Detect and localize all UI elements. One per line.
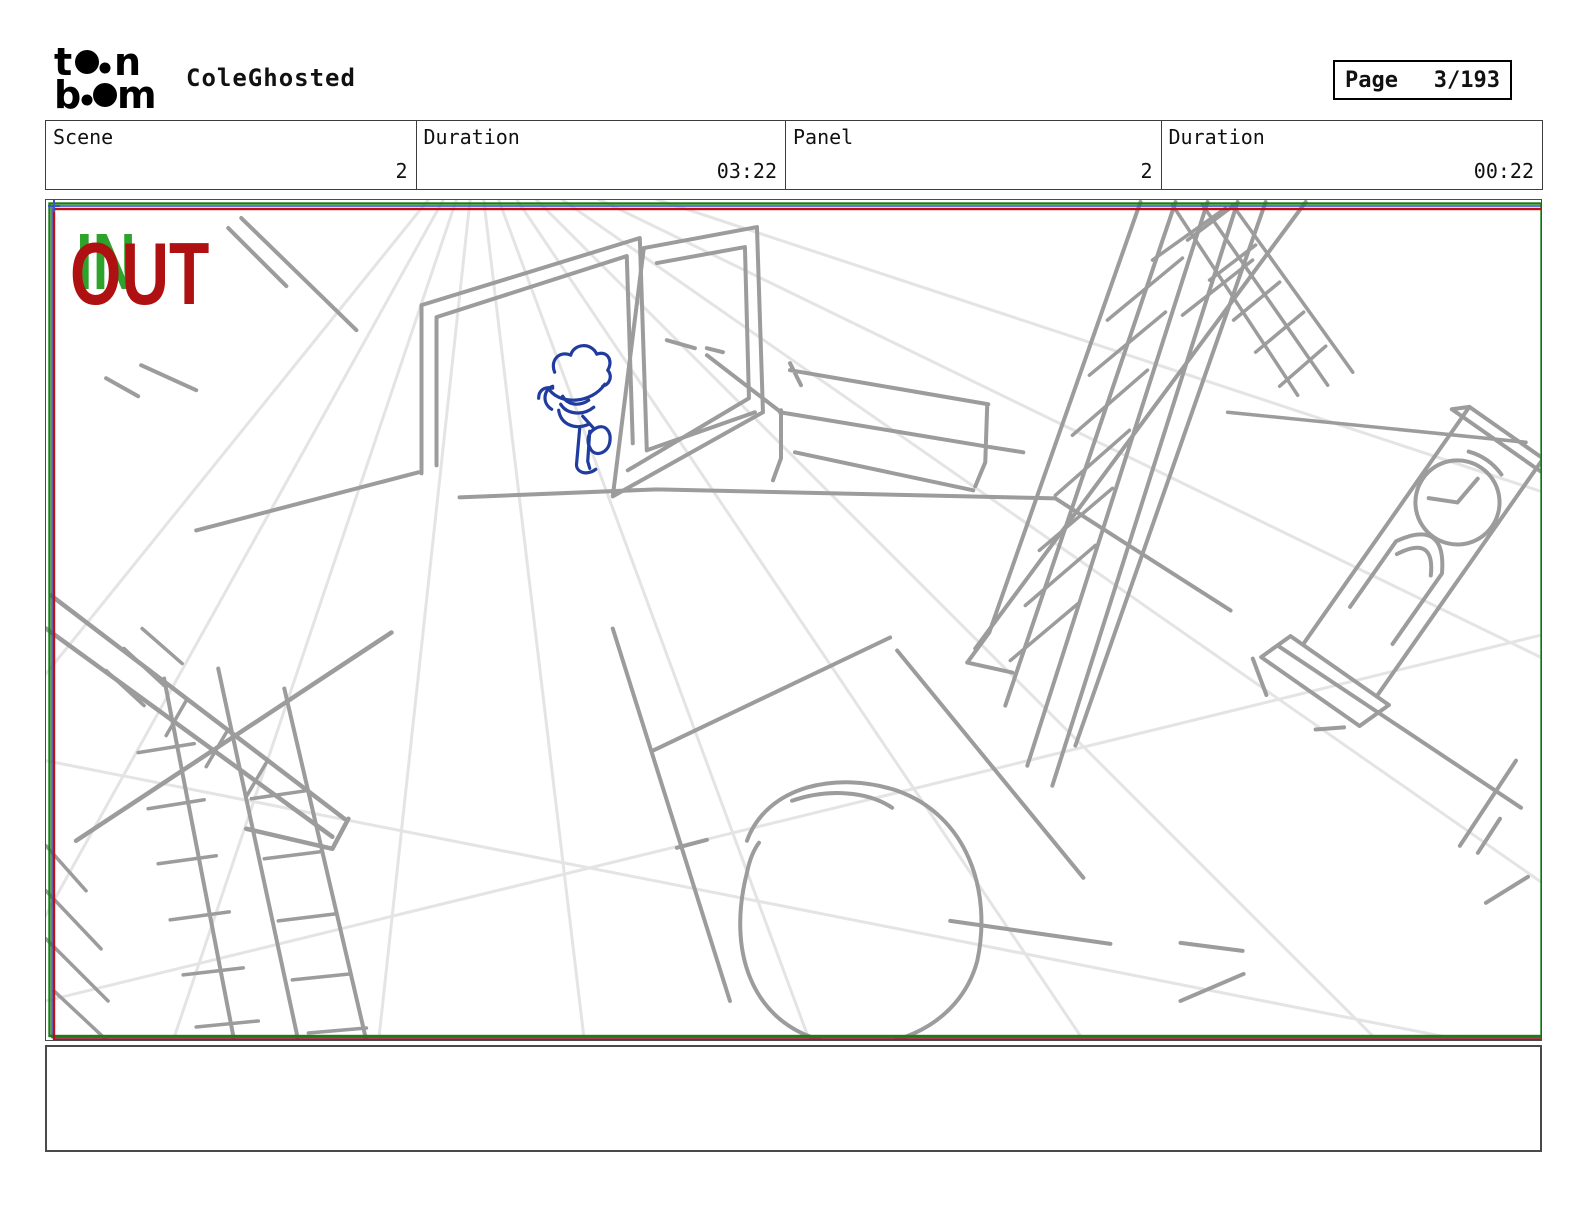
page-indicator: Page 3/193	[1333, 60, 1512, 100]
bench	[773, 363, 1023, 490]
logo-letter-m: m	[117, 73, 157, 112]
panel-duration-value: 00:22	[1474, 159, 1534, 183]
figure-arm	[545, 386, 553, 409]
left-beams	[46, 595, 391, 848]
scene-duration-cell: Duration 03:22	[417, 121, 787, 189]
scene-cell: Scene 2	[46, 121, 417, 189]
panel-cell: Panel 2	[786, 121, 1162, 189]
page-value: 3/193	[1434, 68, 1500, 93]
logo-dot-small2	[82, 95, 93, 106]
clock-floor-strokes	[1181, 646, 1528, 1001]
storyboard-panel: IN OUT	[45, 199, 1542, 1041]
caption-box	[45, 1045, 1542, 1152]
scene-duration-label: Duration	[424, 125, 520, 149]
room-sketch	[46, 202, 1541, 1040]
door-frame	[422, 238, 647, 473]
topright-hatch	[1173, 205, 1526, 442]
panel-duration-cell: Duration 00:22	[1162, 121, 1543, 189]
left-balusters	[164, 669, 366, 1040]
floor-strokes	[613, 629, 1111, 1001]
logo-letter-b: b	[54, 73, 81, 112]
panel-value: 2	[1140, 159, 1152, 183]
storyboard-sketch	[46, 200, 1541, 1040]
scene-duration-value: 03:22	[717, 159, 777, 183]
panel-label: Panel	[793, 125, 853, 149]
pillar-cluster	[967, 202, 1305, 786]
logo-dot-small	[100, 63, 111, 74]
logo-dot-large2	[93, 83, 117, 107]
logo-dot-large	[75, 50, 99, 74]
camera-out-label: OUT	[70, 230, 209, 318]
wall-floor-lines	[196, 340, 1230, 610]
page-label: Page	[1345, 68, 1398, 93]
scene-value: 2	[395, 159, 407, 183]
left-bottom-hatch	[46, 846, 116, 1040]
project-title: ColeGhosted	[186, 64, 356, 92]
shot-info-table: Scene 2 Duration 03:22 Panel 2 Duration …	[45, 120, 1543, 190]
character-figure	[539, 346, 611, 473]
scene-label: Scene	[53, 125, 113, 149]
figure-hat	[553, 346, 610, 387]
toonboom-logo-icon: t n b m	[54, 48, 184, 114]
panel-duration-label: Duration	[1169, 125, 1265, 149]
camera-frame-in-green	[50, 204, 1541, 1036]
